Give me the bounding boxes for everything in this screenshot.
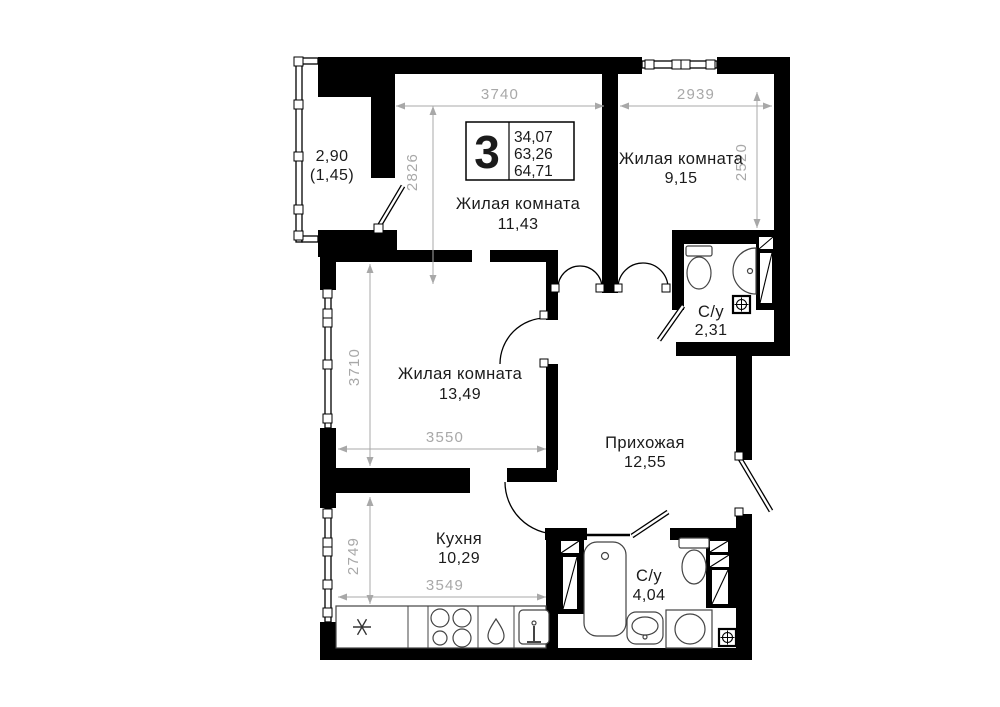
bathroom1-name: С/у	[698, 303, 724, 321]
door-entrance	[735, 452, 771, 516]
window-living3	[323, 288, 332, 428]
dim-label-2939: 2939	[677, 86, 715, 103]
dim-kitchen-width: 3549	[338, 577, 546, 601]
bathtub-icon	[584, 542, 626, 636]
dim-label-3710: 3710	[346, 348, 363, 386]
sink-icon	[627, 612, 663, 644]
window-kitchen	[323, 508, 332, 622]
floor-plan: 3740 2939 2826 2520 3710	[0, 0, 1000, 707]
toilet-icon	[679, 538, 709, 584]
badge-room-count: 3	[474, 126, 500, 178]
toilet-icon	[686, 246, 712, 289]
living3-name: Жилая комната	[398, 365, 523, 383]
dim-label-3740: 3740	[481, 86, 519, 103]
apartment-info-badge: 3 34,07 63,26 64,71	[466, 122, 574, 180]
bathroom2-name: С/у	[636, 567, 662, 585]
badge-area: 63,26	[514, 146, 553, 163]
badge-total-area: 64,71	[514, 163, 553, 180]
dim-kitchen-depth: 2749	[345, 497, 374, 604]
balcony-glazing	[294, 57, 318, 242]
door-arc-living2	[618, 263, 668, 288]
kitchen-fixtures	[336, 606, 549, 648]
kitchen-area: 10,29	[438, 550, 480, 567]
door-balcony	[374, 186, 403, 233]
door-bathroom1	[659, 306, 683, 340]
shaft-bathroom2-left	[558, 538, 584, 614]
floor-plan-canvas: 3740 2939 2826 2520 3710	[0, 0, 1000, 707]
drain-icon	[719, 629, 736, 646]
living2-area: 9,15	[665, 170, 698, 187]
living1-name: Жилая комната	[456, 195, 581, 213]
sink-icon	[733, 248, 756, 294]
hallway-area: 12,55	[624, 454, 666, 471]
bathroom1-area: 2,31	[695, 322, 728, 339]
balcony-area-reduced: (1,45)	[310, 167, 354, 184]
hallway-name: Прихожая	[605, 434, 685, 452]
dim-living3-depth: 3710	[346, 264, 374, 466]
dim-label-3550: 3550	[426, 429, 464, 446]
door-stops	[540, 284, 670, 367]
balcony-area: 2,90	[316, 148, 349, 165]
dim-living3-width: 3550	[338, 429, 546, 453]
living2-name: Жилая комната	[619, 150, 744, 168]
washing-machine-icon	[666, 610, 712, 648]
dim-label-2826: 2826	[404, 153, 421, 191]
living3-area: 13,49	[439, 386, 481, 403]
door-arc-kitchen	[505, 482, 557, 534]
badge-living-area: 34,07	[514, 129, 553, 146]
bathroom2-area: 4,04	[633, 587, 666, 604]
drain-icon	[733, 296, 750, 313]
door-arcs	[500, 263, 668, 534]
door-arc-living3	[500, 318, 546, 364]
dim-living1-width: 3740	[396, 86, 604, 110]
window-living2	[642, 60, 717, 69]
door-arc-living1	[558, 266, 602, 288]
kitchen-name: Кухня	[436, 530, 482, 548]
shaft-bathroom1	[756, 232, 780, 310]
kitchen-sink-icon	[519, 610, 549, 644]
dim-label-3549: 3549	[426, 577, 464, 594]
shaft-bathroom2-right	[706, 538, 736, 608]
living1-area: 11,43	[498, 216, 539, 233]
dim-label-2749: 2749	[345, 537, 362, 575]
dim-living2-width: 2939	[620, 86, 772, 110]
door-bathroom2	[632, 512, 668, 536]
